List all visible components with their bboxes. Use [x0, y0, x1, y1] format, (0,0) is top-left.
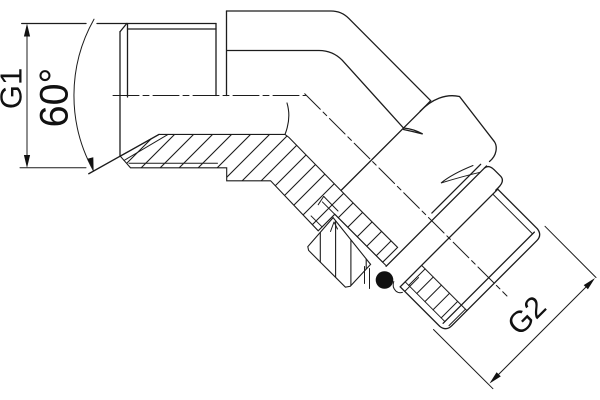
svg-text:G1: G1 [0, 68, 29, 109]
svg-text:60°: 60° [33, 68, 77, 128]
svg-text:G2: G2 [501, 290, 553, 342]
